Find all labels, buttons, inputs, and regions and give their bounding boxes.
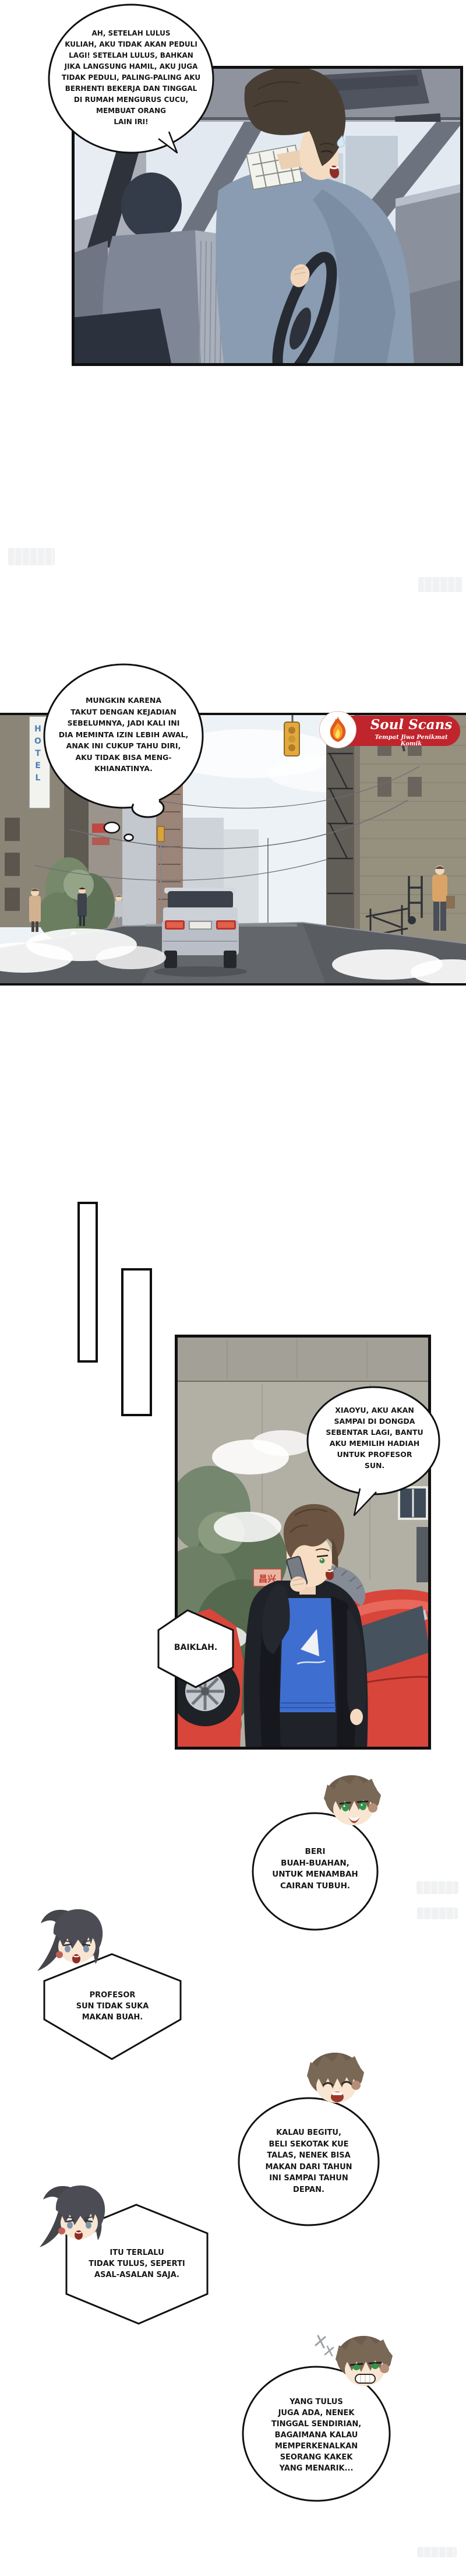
logo-title: Soul Scans bbox=[365, 717, 458, 733]
thought-bubble-street-text: MUNGKIN KARENA TAKUT DENGAN KEJADIAN SEB… bbox=[51, 695, 196, 775]
scanlation-logo: Soul Scans Tempat Jiwa Penikmat Komik bbox=[319, 711, 463, 749]
hair-tie bbox=[58, 2227, 65, 2234]
thought-trail-dot bbox=[125, 835, 133, 841]
chibi-girl-head bbox=[33, 1903, 105, 1976]
sparkle-icon bbox=[316, 2336, 325, 2348]
decor-frame bbox=[77, 1202, 98, 1363]
faint-watermark bbox=[417, 1908, 458, 1919]
comic-page: AH, SETELAH LULUS KULIAH, AKU TIDAK AKAN… bbox=[0, 0, 466, 2576]
license-plate bbox=[189, 921, 211, 929]
flame-icon bbox=[323, 712, 353, 747]
bag bbox=[446, 896, 455, 909]
decor-frame bbox=[121, 1268, 152, 1416]
ear bbox=[351, 2081, 361, 2090]
ear bbox=[380, 2364, 389, 2373]
chat-text: BERI BUAH-BUAHAN, UNTUK MENAMBAH CAIRAN … bbox=[263, 1846, 368, 1892]
chibi-boy-head bbox=[318, 1772, 385, 1830]
chibi-girl-head bbox=[35, 2180, 108, 2253]
faint-watermark bbox=[8, 548, 55, 565]
chat-text: YANG TULUS JUGA ADA, NENEK TINGGAL SENDI… bbox=[258, 2396, 375, 2474]
chat-text: PROFESOR SUN TIDAK SUKA MAKAN BUAH. bbox=[63, 1990, 162, 2023]
logo-tagline: Tempat Jiwa Penikmat Komik bbox=[365, 734, 458, 747]
chibi-boy-head bbox=[312, 2331, 397, 2392]
chat-text: ITU TERLALU TIDAK TULUS, SEPERTI ASAL-AS… bbox=[77, 2247, 196, 2281]
hair-tie bbox=[56, 1951, 63, 1958]
chibi-boy-head bbox=[301, 2049, 368, 2107]
sparkle-icon bbox=[325, 2346, 333, 2356]
chat-text: KALAU BEGITU, BELI SEKOTAK KUE TALAS, NE… bbox=[255, 2127, 363, 2195]
speech-bubble-driver-text: AH, SETELAH LULUS KULIAH, AKU TIDAK AKAN… bbox=[53, 28, 209, 128]
speech-bubble-reply-text: BAIKLAH. bbox=[164, 1642, 227, 1653]
speech-bubble-phone-text: XIAOYU, AKU AKAN SAMPAI DI DONGDA SEBENT… bbox=[317, 1405, 432, 1471]
ear bbox=[368, 1803, 377, 1813]
faint-watermark bbox=[416, 1881, 458, 1894]
faint-watermark bbox=[417, 2547, 457, 2557]
faint-watermark bbox=[418, 577, 463, 592]
thought-trail-dot bbox=[104, 822, 119, 833]
